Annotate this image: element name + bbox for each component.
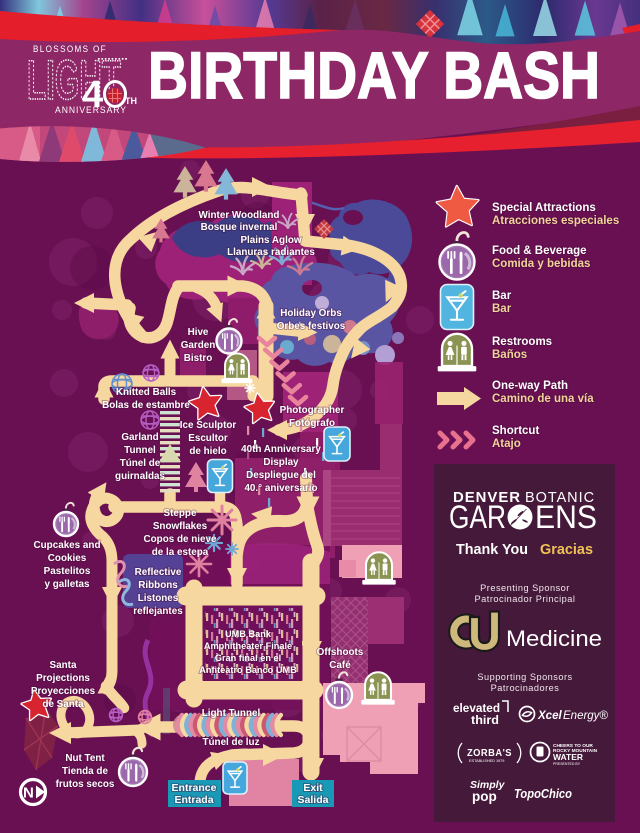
svg-text:ENS: ENS	[535, 499, 597, 535]
svg-text:TopoChico: TopoChico	[514, 786, 572, 801]
svg-text:Thank You: Thank You	[456, 542, 528, 558]
svg-text:GAR: GAR	[449, 499, 506, 535]
svg-text:Light Tunnel: Light Tunnel	[202, 708, 261, 719]
svg-text:Energy®: Energy®	[563, 710, 608, 722]
svg-text:ANNIVERSARY: ANNIVERSARY	[55, 105, 127, 115]
svg-text:Comida y bebidas: Comida y bebidas	[492, 258, 590, 270]
svg-text:ESTABLISHED 1979: ESTABLISHED 1979	[469, 759, 504, 763]
svg-text:PRESENTED BY: PRESENTED BY	[553, 762, 581, 766]
svg-text:Medicine: Medicine	[506, 626, 602, 651]
svg-text:One-way Path: One-way Path	[492, 380, 568, 392]
svg-text:Patrocinadores: Patrocinadores	[491, 683, 560, 693]
svg-text:EntranceEntrada: EntranceEntrada	[172, 782, 217, 806]
svg-text:Food & Beverage: Food & Beverage	[492, 245, 587, 257]
svg-text:Supporting Sponsors: Supporting Sponsors	[477, 672, 572, 682]
svg-text:BIRTHDAY BASH: BIRTHDAY BASH	[148, 38, 600, 112]
svg-text:Baños: Baños	[492, 349, 527, 361]
svg-text:Túnel de luz: Túnel de luz	[202, 737, 259, 748]
svg-text:N: N	[23, 785, 34, 802]
svg-text:pop: pop	[472, 789, 497, 804]
svg-text:Gracias: Gracias	[540, 542, 593, 558]
svg-text:Camino de una vía: Camino de una vía	[492, 393, 594, 405]
svg-text:Atracciones especiales: Atracciones especiales	[492, 215, 619, 227]
svg-text:WATER: WATER	[553, 752, 583, 762]
svg-text:Patrocinador Principal: Patrocinador Principal	[475, 594, 576, 604]
svg-text:Xcel: Xcel	[537, 710, 562, 722]
svg-text:Winter WoodlandBosque invernal: Winter WoodlandBosque invernal	[199, 210, 280, 233]
svg-text:Restrooms: Restrooms	[492, 336, 552, 348]
svg-text:Special Attractions: Special Attractions	[492, 202, 596, 214]
svg-text:ZORBA'S: ZORBA'S	[467, 748, 512, 759]
svg-text:Bar: Bar	[492, 290, 512, 302]
svg-text:Presenting Sponsor: Presenting Sponsor	[480, 583, 570, 593]
svg-text:Atajo: Atajo	[492, 438, 521, 450]
svg-text:Bar: Bar	[492, 303, 512, 315]
svg-text:third: third	[471, 713, 499, 727]
svg-text:Shortcut: Shortcut	[492, 425, 539, 437]
